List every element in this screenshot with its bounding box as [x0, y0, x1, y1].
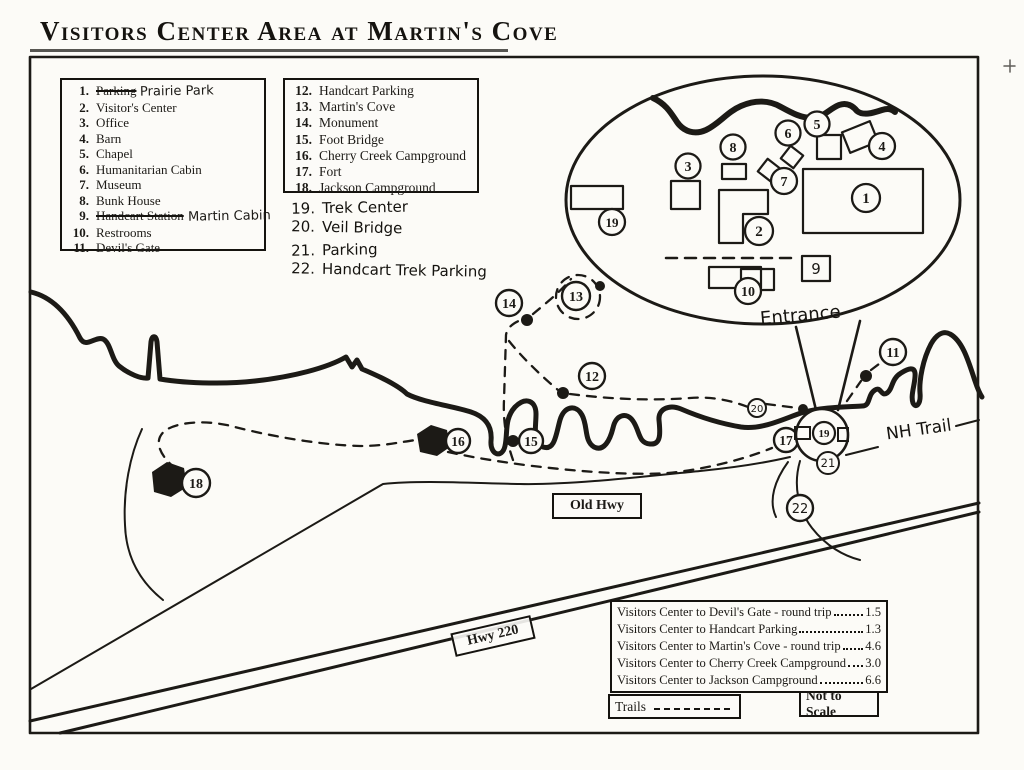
legend-label: Cherry Creek Campground	[319, 148, 466, 164]
legend-label: Museum	[96, 177, 142, 193]
legend-num: 20.	[288, 216, 315, 237]
distance-row: Visitors Center to Martin's Cove - round…	[617, 638, 881, 655]
legend-item-15: 15. Foot Bridge	[287, 132, 473, 148]
distance-table: Visitors Center to Devil's Gate - round …	[610, 600, 888, 693]
legend-label: Martin's Cove	[319, 99, 395, 115]
svg-text:19: 19	[606, 215, 620, 230]
legend-num: 2.	[64, 100, 89, 116]
legend-label: Devil's Gate	[96, 240, 160, 256]
legend-num: 11.	[64, 240, 89, 256]
distance-value: 1.5	[865, 604, 881, 621]
legend-num: 15.	[287, 132, 312, 148]
svg-text:8: 8	[730, 141, 737, 156]
svg-text:18: 18	[189, 477, 203, 492]
page-title: Visitors Center Area at Martin's Cove	[40, 16, 558, 47]
legend-item-9: 9. Handcart Station Martin Cabin	[64, 208, 260, 225]
legend-item-17: 17. Fort	[287, 164, 473, 180]
legend-num: 12.	[287, 83, 312, 99]
legend-num: 16.	[287, 148, 312, 164]
entrance-cluster: 19	[795, 404, 848, 461]
legend-label: Parking	[322, 239, 378, 261]
legend-handwritten-replacement: Martin Cabin	[188, 208, 271, 225]
legend-num: 7.	[64, 177, 89, 193]
marker-4: 4	[869, 133, 895, 159]
legend-label-struck: Handcart Station	[96, 208, 184, 224]
distance-row: Visitors Center to Devil's Gate - round …	[617, 604, 881, 621]
creek-path	[125, 429, 163, 600]
svg-text:2: 2	[755, 224, 763, 240]
dot-leader	[799, 631, 863, 633]
legend-num: 6.	[64, 162, 89, 178]
legend-num: 22.	[288, 258, 315, 279]
svg-text:20: 20	[751, 404, 764, 415]
legend-handwritten-list: 19. Trek Center 20. Veil Bridge 21. Park…	[288, 197, 488, 281]
distance-row: Visitors Center to Cherry Creek Campgrou…	[617, 655, 881, 672]
legend-handwritten-replacement: Prairie Park	[140, 83, 214, 100]
distance-row: Visitors Center to Handcart Parking 1.3	[617, 621, 881, 638]
distance-value: 1.3	[865, 621, 881, 638]
legend-item-4: 4. Barn	[64, 131, 260, 147]
legend-num: 17.	[287, 164, 312, 180]
legend-item-18: 18. Jackson Campground	[287, 180, 473, 196]
marker-16: 16	[417, 425, 470, 456]
dot-leader	[820, 682, 864, 684]
dot-leader	[843, 648, 864, 650]
trails-key-box: Trails	[608, 694, 741, 719]
marker-6: 6	[776, 121, 801, 146]
legend-label: Bunk House	[96, 193, 161, 209]
marker-2: 2	[745, 217, 773, 245]
svg-text:22: 22	[792, 502, 809, 517]
legend-label: Handcart Parking	[319, 83, 414, 99]
marker-8: 8	[721, 135, 746, 160]
svg-text:1: 1	[862, 191, 870, 207]
marker-10: 10	[735, 278, 761, 304]
legend-item-7: 7. Museum	[64, 177, 260, 193]
title-underline	[30, 49, 508, 52]
legend-item-2: 2. Visitor's Center	[64, 100, 260, 116]
old-hwy-label: Old Hwy	[552, 493, 642, 519]
legend-num: 8.	[64, 193, 89, 209]
svg-text:6: 6	[785, 127, 792, 142]
legend-item-3: 3. Office	[64, 115, 260, 131]
marker-18: 18	[152, 462, 210, 497]
legend-num: 18.	[287, 180, 312, 196]
marker-3: 3	[676, 154, 701, 179]
scan-mark	[1004, 60, 1015, 72]
svg-text:10: 10	[741, 285, 755, 300]
legend-label: Jackson Campground	[319, 180, 436, 196]
legend-label: Veil Bridge	[322, 217, 403, 239]
legend-item-12: 12. Handcart Parking	[287, 83, 473, 99]
distance-row: Visitors Center to Jackson Campground 6.…	[617, 672, 881, 689]
not-to-scale-label: Not to Scale	[806, 688, 872, 720]
marker-21: 21	[817, 452, 839, 474]
marker-20: 20	[748, 399, 766, 417]
legend-item-14: 14. Monument	[287, 115, 473, 131]
marker-12: 12	[557, 363, 605, 399]
svg-text:12: 12	[585, 370, 599, 385]
svg-text:9: 9	[811, 260, 821, 278]
marker-22: 22	[787, 495, 813, 521]
dot-leader	[834, 614, 864, 616]
legend-label: Fort	[319, 164, 342, 180]
distance-value: 3.0	[865, 655, 881, 672]
legend-label: Trek Center	[322, 197, 408, 219]
trailhead-dot-11	[860, 370, 872, 382]
trails-key-dash-sample	[654, 708, 730, 710]
legend-num: 14.	[287, 115, 312, 131]
legend-label: Visitor's Center	[96, 100, 177, 116]
svg-text:7: 7	[781, 175, 788, 190]
legend-box-left: 1. Parking Prairie Park 2. Visitor's Cen…	[60, 78, 266, 251]
legend-item-16: 16. Cherry Creek Campground	[287, 148, 473, 164]
svg-text:14: 14	[502, 297, 516, 312]
marker-1: 1	[852, 184, 880, 212]
marker-14: 14	[496, 290, 533, 326]
oval-inset	[566, 76, 960, 324]
svg-text:4: 4	[879, 140, 886, 155]
legend-item-10: 10. Restrooms	[64, 225, 260, 241]
trailhead-dot-14	[521, 314, 533, 326]
legend-item-13: 13. Martin's Cove	[287, 99, 473, 115]
svg-text:13: 13	[569, 290, 583, 305]
trailhead-dot-12	[557, 387, 569, 399]
dot-leader	[848, 665, 863, 667]
legend-num: 9.	[64, 208, 89, 224]
svg-text:21: 21	[821, 456, 836, 470]
scanned-map-page: 1 2 3 4 5 6 7 8 9	[0, 0, 1024, 770]
svg-text:3: 3	[685, 160, 692, 175]
marker-7: 7	[771, 168, 797, 194]
marker-5: 5	[805, 112, 830, 137]
legend-box-right: 12. Handcart Parking 13. Martin's Cove 1…	[283, 78, 479, 193]
cluster-dot	[798, 404, 808, 414]
legend-item-1: 1. Parking Prairie Park	[64, 83, 260, 100]
svg-text:17: 17	[779, 433, 793, 448]
svg-text:16: 16	[451, 434, 465, 449]
marker-9: 9	[811, 260, 821, 278]
legend-label: Restrooms	[96, 225, 152, 241]
svg-text:11: 11	[886, 346, 899, 361]
legend-num: 13.	[287, 99, 312, 115]
legend-item-8: 8. Bunk House	[64, 193, 260, 209]
legend-label: Humanitarian Cabin	[96, 162, 202, 178]
marker-19-cluster: 19	[819, 428, 831, 440]
distance-value: 4.6	[865, 638, 881, 655]
inset-oval	[566, 76, 960, 324]
legend-label: Foot Bridge	[319, 132, 384, 148]
distance-label: Visitors Center to Devil's Gate - round …	[617, 604, 832, 621]
trailhead-dot-13	[595, 281, 605, 291]
distance-label: Visitors Center to Martin's Cove - round…	[617, 638, 841, 655]
legend-label: Handcart Trek Parking	[322, 259, 487, 283]
distance-value: 6.6	[865, 672, 881, 689]
legend-item-6: 6. Humanitarian Cabin	[64, 162, 260, 178]
legend-item-11: 11. Devil's Gate	[64, 240, 260, 256]
legend-num: 5.	[64, 146, 89, 162]
marker-19-inset: 19	[599, 209, 625, 235]
legend-num: 1.	[64, 83, 89, 99]
footbridge-dot	[507, 435, 519, 447]
svg-text:15: 15	[524, 434, 538, 449]
not-to-scale-box: Not to Scale	[799, 691, 879, 717]
legend-item-22: 22. Handcart Trek Parking	[288, 258, 488, 282]
legend-label-struck: Parking	[96, 83, 136, 99]
legend-label: Barn	[96, 131, 121, 147]
legend-item-5: 5. Chapel	[64, 146, 260, 162]
trail-handcart	[509, 341, 798, 408]
distance-label: Visitors Center to Handcart Parking	[617, 621, 797, 638]
legend-num: 3.	[64, 115, 89, 131]
legend-num: 4.	[64, 131, 89, 147]
legend-label: Monument	[319, 115, 378, 131]
distance-label: Visitors Center to Jackson Campground	[617, 672, 818, 689]
trails-key-label: Trails	[615, 699, 646, 715]
marker-15: 15	[507, 429, 543, 453]
legend-label: Office	[96, 115, 129, 131]
distance-label: Visitors Center to Cherry Creek Campgrou…	[617, 655, 846, 672]
legend-num: 10.	[64, 225, 89, 241]
legend-label: Chapel	[96, 146, 133, 162]
svg-text:5: 5	[814, 118, 821, 133]
